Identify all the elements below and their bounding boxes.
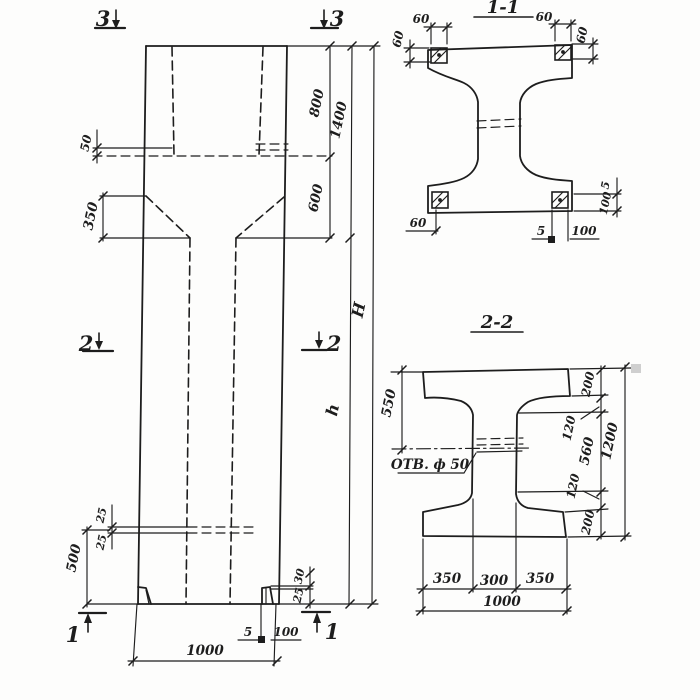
dim-foot-30: 30 bbox=[292, 567, 308, 585]
section-2-2-outline bbox=[423, 369, 570, 537]
dim-plate-5-bottom: 5 bbox=[537, 224, 545, 238]
section-1-1-view: 1-1 bbox=[390, 0, 622, 243]
dim-550: 550 bbox=[378, 387, 400, 418]
dim-base-5: 5 bbox=[244, 625, 252, 639]
scan-artifact bbox=[631, 364, 641, 373]
dim-plate-60-bl: 60 bbox=[410, 216, 427, 230]
dim-recess-50: 50 bbox=[78, 133, 95, 153]
section-1-1-labels: 60 60 60 60 60 5 100 5 100 bbox=[390, 10, 615, 238]
dim-300: 300 bbox=[480, 573, 509, 589]
hole-callout-label: ОТВ. ф 50 bbox=[391, 457, 470, 473]
dim-embed-25-lower: 25 bbox=[93, 533, 109, 552]
dim-foot-25: 25 bbox=[290, 586, 306, 605]
section-mark-3-right: 3 bbox=[330, 6, 345, 31]
dim-embed-500: 500 bbox=[63, 542, 85, 573]
section-1-1-outline bbox=[428, 45, 572, 213]
cut-arrow-2-right bbox=[315, 340, 323, 349]
view-title-2-2: 2-2 bbox=[480, 312, 514, 333]
dim-base-100: 100 bbox=[273, 625, 299, 639]
section-mark-2-left: 2 bbox=[78, 331, 94, 356]
dim-shaft-h: h bbox=[322, 402, 343, 417]
dim-width-1000: 1000 bbox=[186, 643, 224, 659]
dim-350-right: 350 bbox=[526, 571, 555, 587]
dim-plate-100-bottom: 100 bbox=[571, 224, 597, 238]
dim-200-bottom: 200 bbox=[578, 508, 597, 537]
dim-plate-60-tr-w: 60 bbox=[536, 10, 553, 24]
dim-600: 600 bbox=[305, 182, 327, 213]
technical-drawing-sheet: 3 3 2 2 1 1 50 350 25 25 500 800 600 140… bbox=[0, 0, 700, 700]
cut-arrow-2-left bbox=[95, 341, 103, 350]
dim-350-left: 350 bbox=[433, 571, 462, 587]
dim-plate-5-right: 5 bbox=[598, 180, 612, 190]
dim-560: 560 bbox=[576, 435, 598, 466]
dim-haunch-350: 350 bbox=[80, 200, 102, 231]
dim-1200: 1200 bbox=[598, 421, 622, 462]
dim-plate-60-tl-h: 60 bbox=[390, 29, 407, 49]
section-cut-marks bbox=[79, 10, 338, 632]
dim-1400: 1400 bbox=[327, 100, 351, 141]
section-mark-1-left: 1 bbox=[66, 622, 81, 647]
dim-plate-60-tr-h: 60 bbox=[574, 25, 591, 45]
elevation-hidden-lines bbox=[93, 47, 332, 604]
embedded-plates-1-1 bbox=[431, 45, 571, 208]
dim-plate-60-tl-w: 60 bbox=[413, 12, 430, 26]
dim-1000-section: 1000 bbox=[483, 594, 521, 610]
dim-800: 800 bbox=[306, 87, 328, 118]
hole-lines bbox=[392, 438, 532, 452]
dim-120-bottom: 120 bbox=[564, 472, 583, 500]
elevation-labels: 3 3 2 2 1 1 50 350 25 25 500 800 600 140… bbox=[63, 6, 369, 659]
column-working-drawing: 3 3 2 2 1 1 50 350 25 25 500 800 600 140… bbox=[0, 0, 700, 700]
view-title-1-1: 1-1 bbox=[487, 0, 520, 18]
web-break-line bbox=[477, 126, 521, 128]
section-1-1-dimension-lines bbox=[404, 20, 621, 243]
cut-arrow-1-right bbox=[313, 612, 321, 623]
elevation-outline bbox=[138, 46, 287, 604]
web-break-line bbox=[477, 119, 521, 121]
section-mark-1-right: 1 bbox=[325, 619, 340, 644]
section-mark-3-left: 3 bbox=[96, 6, 111, 31]
dim-200-top: 200 bbox=[578, 370, 597, 399]
section-2-2-labels: 550 ОТВ. ф 50 200 120 560 120 200 1200 3… bbox=[378, 370, 622, 610]
cut-arrow-1-left bbox=[84, 613, 92, 623]
dim-embed-25-upper: 25 bbox=[93, 506, 109, 525]
elevation-view: 3 3 2 2 1 1 50 350 25 25 500 800 600 140… bbox=[63, 6, 380, 666]
dim-120-top: 120 bbox=[560, 414, 579, 442]
section-2-2-view: 2-2 bbox=[378, 312, 641, 616]
section-mark-2-right: 2 bbox=[326, 331, 342, 356]
section-2-2-dimension-lines bbox=[391, 365, 631, 614]
